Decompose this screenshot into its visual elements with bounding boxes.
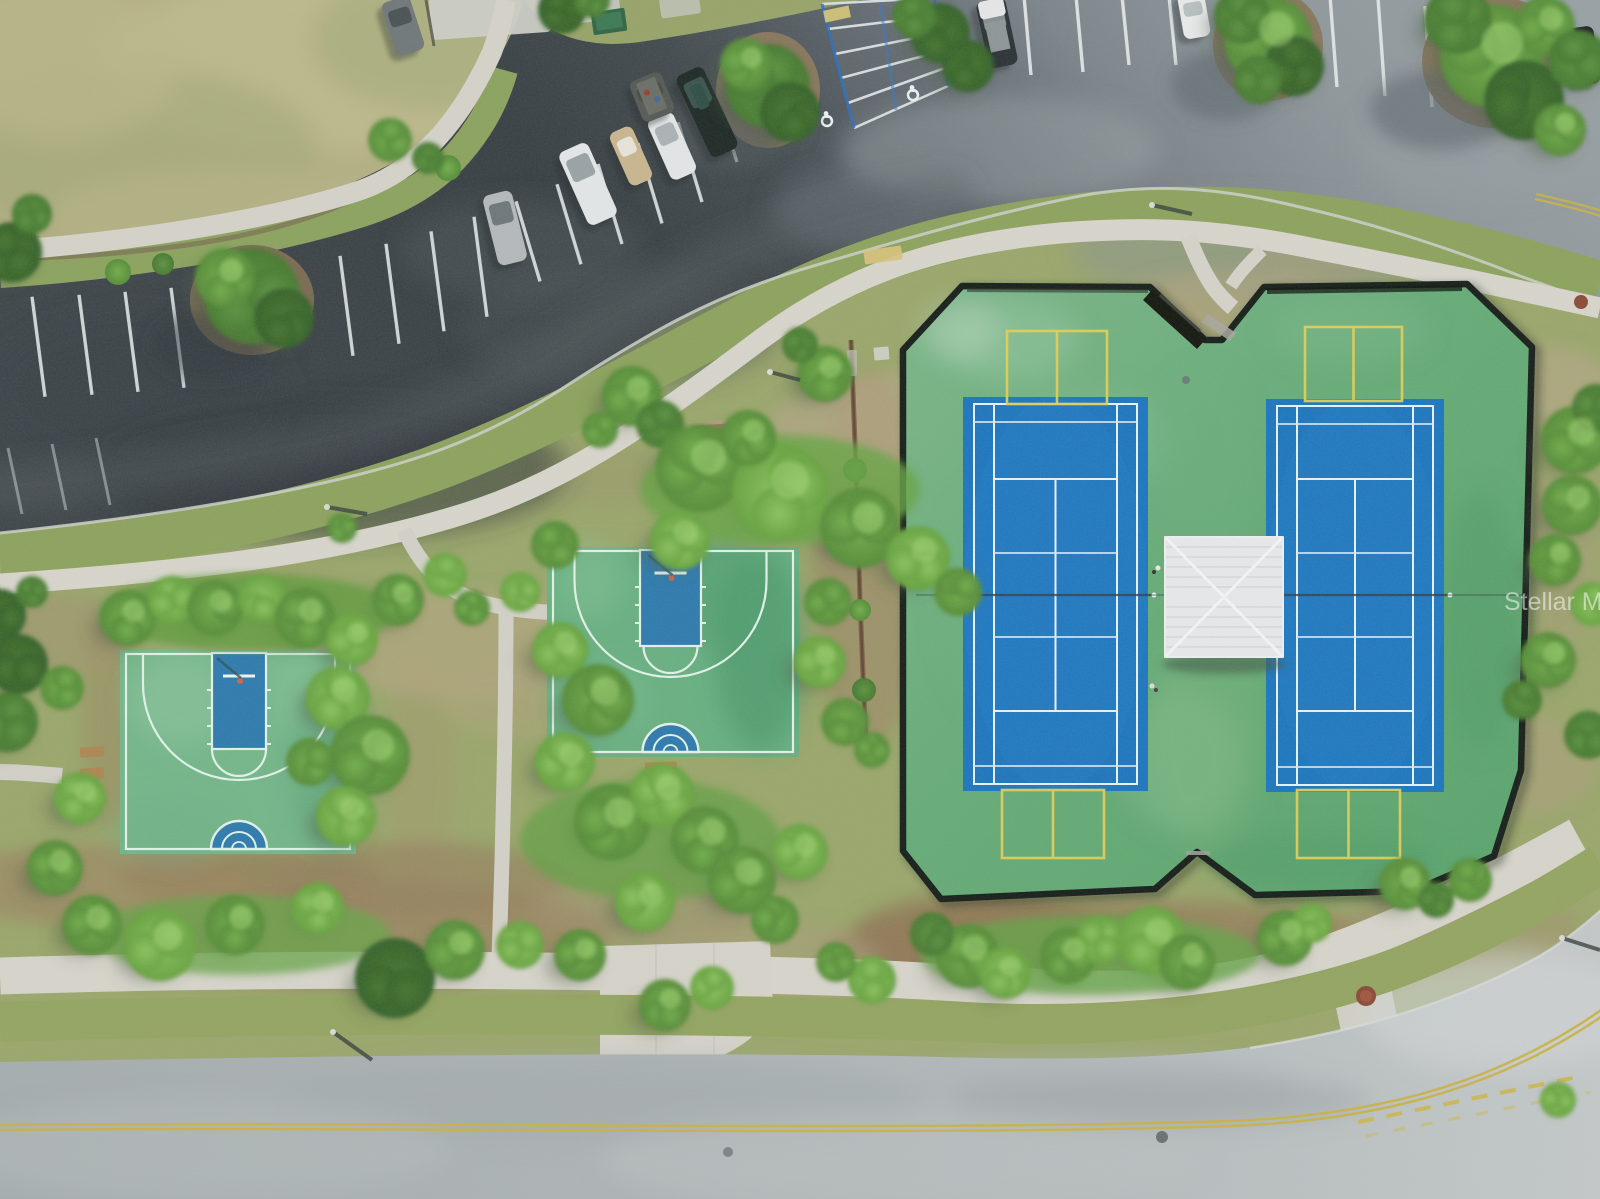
svg-text:Stellar MLS: Stellar MLS <box>1504 588 1600 616</box>
